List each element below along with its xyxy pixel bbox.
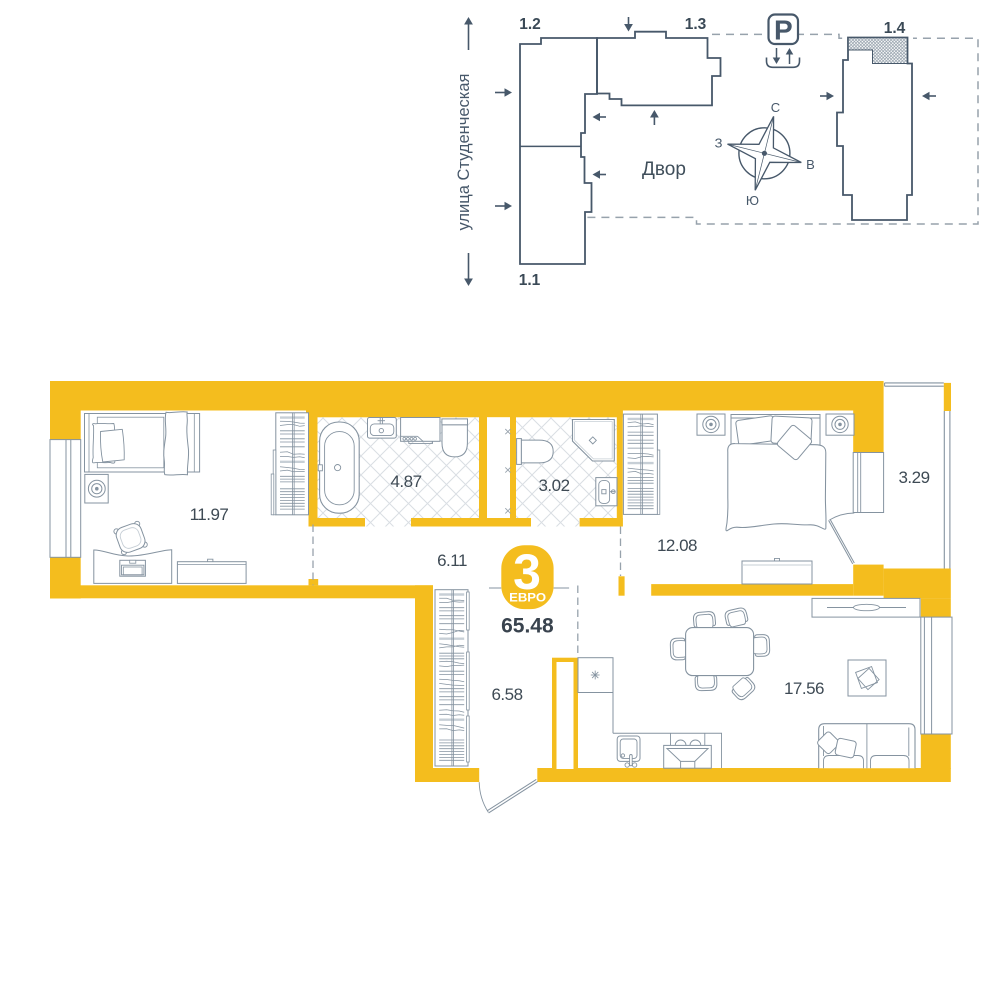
svg-text:3.29: 3.29 [898,468,929,487]
svg-text:17.56: 17.56 [784,679,824,698]
svg-text:1.3: 1.3 [685,16,707,33]
svg-text:1.4: 1.4 [884,20,906,37]
svg-text:Двор: Двор [642,159,686,180]
svg-text:12.08: 12.08 [657,536,697,555]
svg-text:65.48: 65.48 [501,615,554,638]
svg-text:1.1: 1.1 [519,272,541,289]
svg-text:улица Студенческая: улица Студенческая [455,74,473,231]
svg-text:В: В [806,157,815,172]
svg-text:Ю: Ю [746,193,759,208]
svg-text:P: P [774,14,793,45]
svg-text:6.11: 6.11 [437,551,467,570]
svg-text:11.97: 11.97 [190,505,229,524]
svg-text:С: С [771,100,780,115]
svg-text:3.02: 3.02 [538,476,569,495]
svg-text:6.58: 6.58 [491,685,522,704]
svg-text:З: З [715,136,723,151]
svg-text:1.2: 1.2 [519,16,541,33]
svg-text:4.87: 4.87 [390,472,421,491]
svg-text:ЕВРО: ЕВРО [509,591,546,605]
